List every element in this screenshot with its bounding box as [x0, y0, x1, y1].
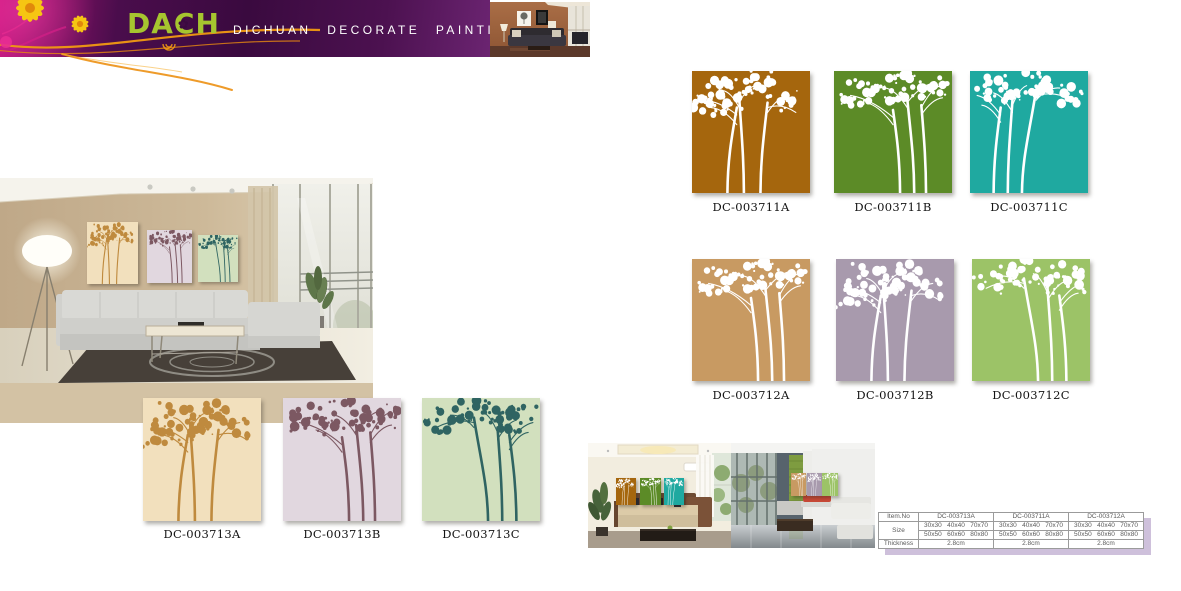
product-code-label: DC-003713B: [283, 527, 401, 541]
catalog-page: { "header": { "logo_parts": ["DA", "C", …: [0, 0, 1181, 591]
spec-thickness-col3: 2.8cm: [1069, 540, 1144, 549]
spec-table: Item.No DC-003713A DC-003711A DC-003712A…: [878, 512, 1144, 549]
product-swatch: [692, 259, 810, 381]
spec-itemno-col3: DC-003712A: [1069, 513, 1144, 522]
spec-size1-col1: 30x30 40x40 70x70: [919, 522, 994, 531]
logo-text-da: DA: [127, 7, 174, 40]
product-swatch: [143, 398, 261, 521]
spec-row-label-itemno: Item.No: [879, 513, 919, 522]
spec-size2-col2: 50x50 60x60 80x80: [994, 531, 1069, 540]
wall-art-thumb: [87, 222, 138, 284]
showroom-photo: [0, 178, 373, 383]
logo-letter-c: C✿: [174, 10, 196, 38]
product-swatch: [692, 71, 810, 193]
product-swatch: [422, 398, 540, 521]
header-room-illustration: [490, 2, 590, 57]
wall-art-thumb: [807, 473, 822, 496]
wall-art-thumb: [198, 235, 238, 282]
product-swatch: [836, 259, 954, 381]
room-photo-thumb-2: [731, 443, 875, 548]
product-code-label: DC-003711C: [970, 200, 1088, 214]
product-code-label: DC-003712B: [836, 388, 954, 402]
product-swatch: [970, 71, 1088, 193]
room-photo-thumb-1: [588, 443, 731, 548]
header-room-photo: [490, 2, 590, 57]
spec-thickness-col1: 2.8cm: [919, 540, 994, 549]
product-code-label: DC-003712A: [692, 388, 810, 402]
flower-icon: ✿: [178, 19, 190, 32]
wall-art-thumb: [640, 478, 661, 505]
logo-text-h: H: [195, 7, 219, 40]
brand-tagline: DICHUAN DECORATE PAINTING: [233, 23, 490, 37]
product-code-label: DC-003712C: [972, 388, 1090, 402]
spec-row-itemno: Item.No DC-003713A DC-003711A DC-003712A: [879, 513, 1144, 522]
product-code-label: DC-003713A: [143, 527, 261, 541]
product-swatch: [834, 71, 952, 193]
wall-art-thumb: [791, 473, 806, 496]
product-code-label: DC-003711A: [692, 200, 810, 214]
brand-logo: DAC✿H: [127, 10, 220, 38]
spec-size1-col2: 30x30 40x40 70x70: [994, 522, 1069, 531]
spec-itemno-col2: DC-003711A: [994, 513, 1069, 522]
spec-size2-col1: 50x50 60x60 80x80: [919, 531, 994, 540]
header-banner: DAC✿H DICHUAN DECORATE PAINTING: [0, 0, 490, 57]
product-swatch: [972, 259, 1090, 381]
spec-itemno-col1: DC-003713A: [919, 513, 994, 522]
product-code-label: DC-003713C: [422, 527, 540, 541]
wall-art-thumb: [147, 230, 192, 283]
wall-art-thumb: [664, 478, 684, 505]
coffee-table: [777, 519, 813, 531]
spec-size2-col3: 50x50 60x60 80x80: [1069, 531, 1144, 540]
spec-size1-col3: 30x30 40x40 70x70: [1069, 522, 1144, 531]
spec-thickness-col2: 2.8cm: [994, 540, 1069, 549]
product-swatch: [283, 398, 401, 521]
spec-row-thickness: Thickness 2.8cm 2.8cm 2.8cm: [879, 540, 1144, 549]
wall-art-thumb: [616, 478, 636, 505]
wall-art-thumb: [822, 473, 838, 496]
spec-row-size-2: 50x50 60x60 80x80 50x50 60x60 80x80 50x5…: [879, 531, 1144, 540]
spec-row-size-1: Size 30x30 40x40 70x70 30x30 40x40 70x70…: [879, 522, 1144, 531]
product-code-label: DC-003711B: [834, 200, 952, 214]
spec-row-label-size: Size: [879, 522, 919, 540]
spec-row-label-thickness: Thickness: [879, 540, 919, 549]
